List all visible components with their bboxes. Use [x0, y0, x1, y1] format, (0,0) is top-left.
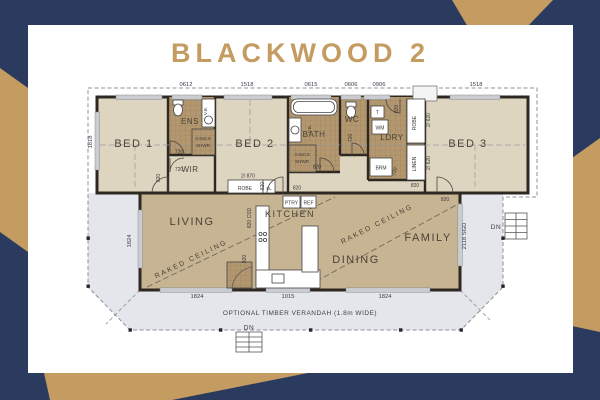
dim-bottom-1015: 1015	[282, 294, 295, 300]
note-dn-bottom: DN	[244, 325, 254, 332]
door-label-pantry-820: 820	[242, 255, 248, 264]
window-bed3	[450, 95, 500, 100]
door-label-robe-620: 2/ 620	[426, 113, 432, 127]
room-label-ens: ENS	[181, 117, 199, 126]
door-ldry-external	[364, 95, 390, 100]
room-label-family: FAMILY	[404, 232, 451, 244]
door-label-kitchen-csd: 820 CSD	[247, 207, 253, 228]
dim-top-0612: 0612	[180, 82, 193, 88]
window-bed1-side	[95, 112, 100, 170]
room-label-wc: WC	[345, 115, 359, 124]
door-label-ldry-820: 820	[394, 105, 400, 114]
label-robe-sl: SL	[266, 186, 272, 191]
label-vb-bath: V.B.	[307, 125, 312, 133]
dim-right-2118-sgd: 2118 SGD	[462, 223, 468, 250]
window-bed2	[224, 95, 272, 100]
door-label-linen-620: 2/ 620	[426, 156, 432, 170]
window-living-side	[138, 210, 143, 268]
kitchen-peninsula	[302, 226, 318, 272]
room-label-living: LIVING	[169, 216, 214, 228]
steps-right	[505, 213, 527, 239]
page-background: BLACKWOOD 2	[0, 0, 600, 400]
window-living-bottom	[160, 288, 232, 293]
note-verandah: OPTIONAL TIMBER VERANDAH (1.8m WIDE)	[223, 310, 377, 317]
window-wc	[341, 95, 361, 100]
door-label-hall2-820: 820	[411, 183, 420, 189]
dim-top-1518a: 1518	[241, 82, 254, 88]
corner-pantry	[227, 262, 252, 288]
door-label-bed2-820: 820	[260, 182, 266, 191]
room-label-bed2: BED 2	[235, 138, 274, 150]
note-dn-right: DN	[491, 224, 501, 231]
dim-top-0906: 0906	[373, 82, 386, 88]
label-robe-tall: ROBE	[412, 115, 418, 130]
basin-ens	[205, 116, 213, 124]
label-ref: REF	[304, 200, 314, 206]
door-label-wc-720: 720	[348, 134, 354, 143]
door-label-wir-720: 720	[175, 167, 184, 173]
label-robe-bed2: ROBE	[238, 186, 253, 192]
shower-ens	[192, 129, 215, 155]
label-shwr-ens: SHWR	[196, 143, 211, 148]
cooktop-burner	[259, 238, 262, 241]
dim-left-1824: 1824	[127, 234, 133, 248]
kitchen-bench-bottom	[256, 270, 320, 288]
door-label-bed1-820: 820	[156, 174, 162, 183]
dim-bottom-1824a: 1824	[191, 294, 205, 300]
dim-top-1518b: 1518	[470, 82, 483, 88]
cooktop-burner	[263, 238, 266, 241]
kitchen-sink	[272, 274, 284, 283]
label-brm: BRM	[375, 166, 386, 172]
cooktop-burner	[263, 232, 266, 235]
basin-bath	[291, 126, 299, 134]
cooktop-burner	[259, 232, 262, 235]
toilet-ens	[174, 104, 183, 116]
door-label-bath-820: 820	[313, 165, 322, 171]
room-label-bed3: BED 3	[448, 138, 487, 150]
window-ens	[172, 95, 202, 100]
label-shwr-ens-size: 0.9x0.9	[195, 136, 211, 141]
floor-plan: BED 1 ENS WIR BED 2 BATH WC LDRY BED 3 L…	[0, 0, 600, 400]
steps-bottom	[236, 332, 262, 352]
dim-top-0615: 0615	[305, 82, 318, 88]
room-label-bed1: BED 1	[114, 138, 153, 150]
door-kitchen-bottom	[266, 288, 310, 293]
door-label-bed3-820: 820	[441, 197, 450, 203]
room-label-dining: DINING	[332, 254, 380, 266]
label-linen: LINEN	[412, 156, 418, 171]
label-ptry: PTRY	[285, 200, 299, 206]
label-wm: WM	[376, 126, 385, 132]
label-shwr-bath: SHWR	[295, 159, 310, 164]
room-label-ldry: LDRY	[380, 133, 403, 142]
room-label-kitchen: KITCHEN	[265, 209, 315, 219]
label-tub: T	[376, 110, 379, 116]
window-bed1-top	[116, 95, 162, 100]
dim-top-0606: 0606	[345, 82, 358, 88]
door-label-robe-870: 2/ 870	[241, 174, 255, 180]
room-label-wir: WIR	[181, 165, 198, 174]
door-label-hall-820: 820	[293, 186, 302, 192]
label-vb-ens: V.B.	[203, 107, 208, 115]
door-label-ens-720: 720	[175, 150, 184, 156]
label-shwr-bath-size: 0.9x0.9	[294, 152, 310, 157]
dim-left-1818: 1818	[88, 136, 94, 149]
window-dining-bottom	[346, 288, 430, 293]
dim-bottom-1824b: 1824	[379, 294, 393, 300]
